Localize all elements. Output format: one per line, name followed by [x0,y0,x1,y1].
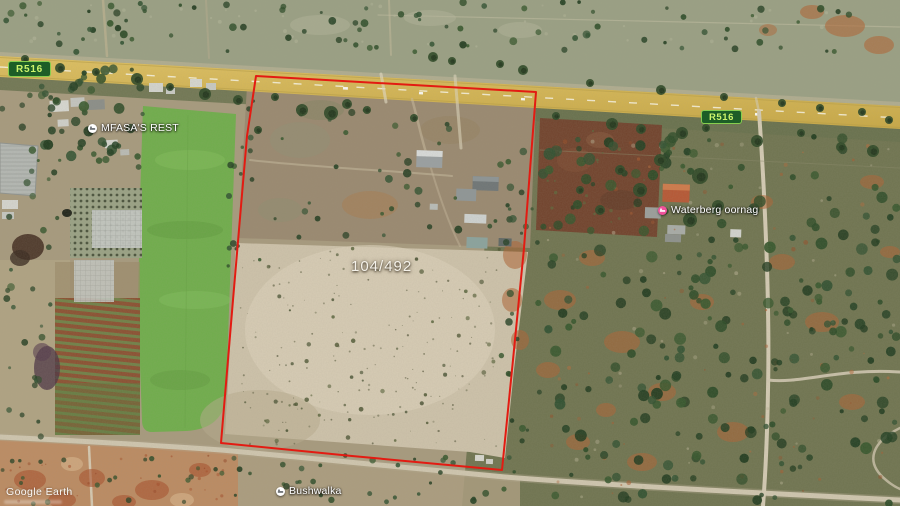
attribution-text-illegible [4,500,62,504]
route-shield-r516-east: R516 [701,110,742,124]
place-bushwalka[interactable]: Bushwalka [276,485,342,497]
google-earth-watermark: Google Earth [6,486,73,498]
lodging-pin-icon[interactable] [276,487,285,496]
place-label: Bushwalka [289,485,342,497]
route-shield-label: R516 [709,112,734,123]
route-shield-r516-west: R516 [8,61,51,77]
parcel-number-label: 104/492 [351,258,412,275]
grain-texture [0,0,900,506]
place-waterberg-oornag[interactable]: Waterberg oornag [658,204,758,216]
lodging-pin-icon[interactable] [88,124,97,133]
google-earth-viewport: R516 R516 104/492 MFASA'S REST Waterberg… [0,0,900,506]
place-mfasas-rest[interactable]: MFASA'S REST [88,122,179,134]
satellite-map[interactable] [0,0,900,506]
place-label: MFASA'S REST [101,122,179,134]
place-label: Waterberg oornag [671,204,758,216]
route-shield-label: R516 [16,64,43,75]
lodging-pin-icon[interactable] [658,206,667,215]
